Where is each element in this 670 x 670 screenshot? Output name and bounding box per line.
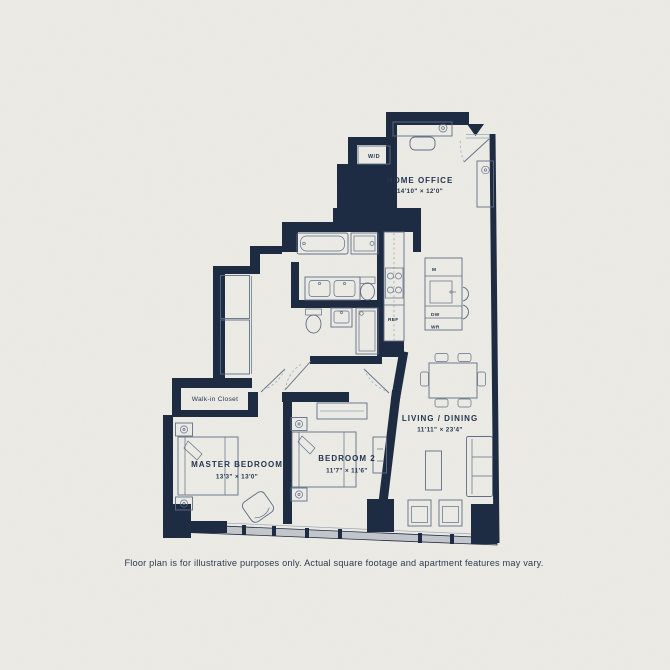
floor-plan-page: HOME OFFICE 14'10" × 12'0" W/D — [0, 0, 670, 670]
paper-texture — [0, 0, 670, 670]
floor-plan-svg: HOME OFFICE 14'10" × 12'0" W/D — [0, 0, 670, 670]
